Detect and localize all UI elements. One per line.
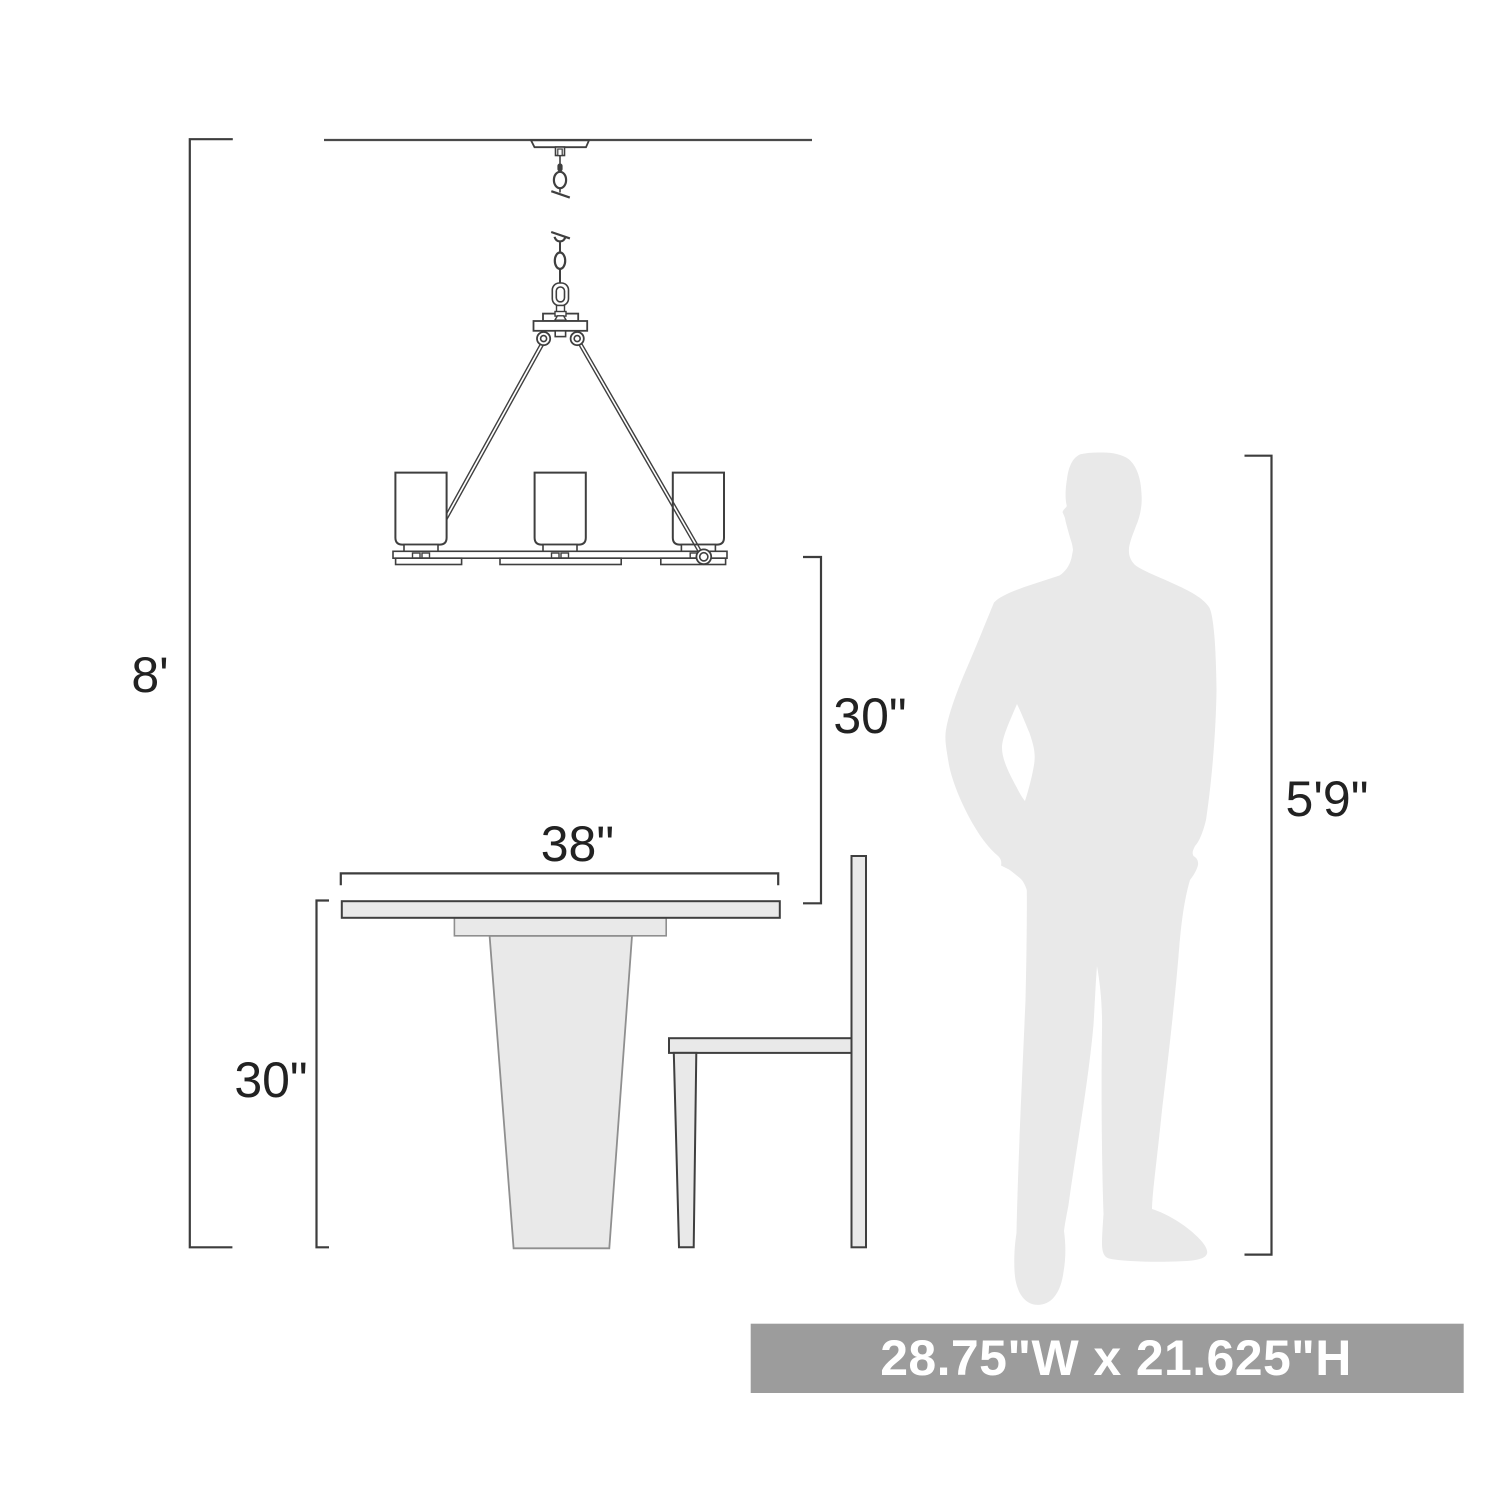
svg-text:5'9": 5'9" — [1286, 771, 1369, 827]
svg-text:28.75"W x 21.625"H: 28.75"W x 21.625"H — [880, 1330, 1352, 1386]
svg-text:38": 38" — [541, 816, 614, 872]
svg-text:30": 30" — [234, 1052, 307, 1108]
svg-text:30": 30" — [833, 688, 906, 744]
svg-text:8': 8' — [131, 647, 168, 703]
